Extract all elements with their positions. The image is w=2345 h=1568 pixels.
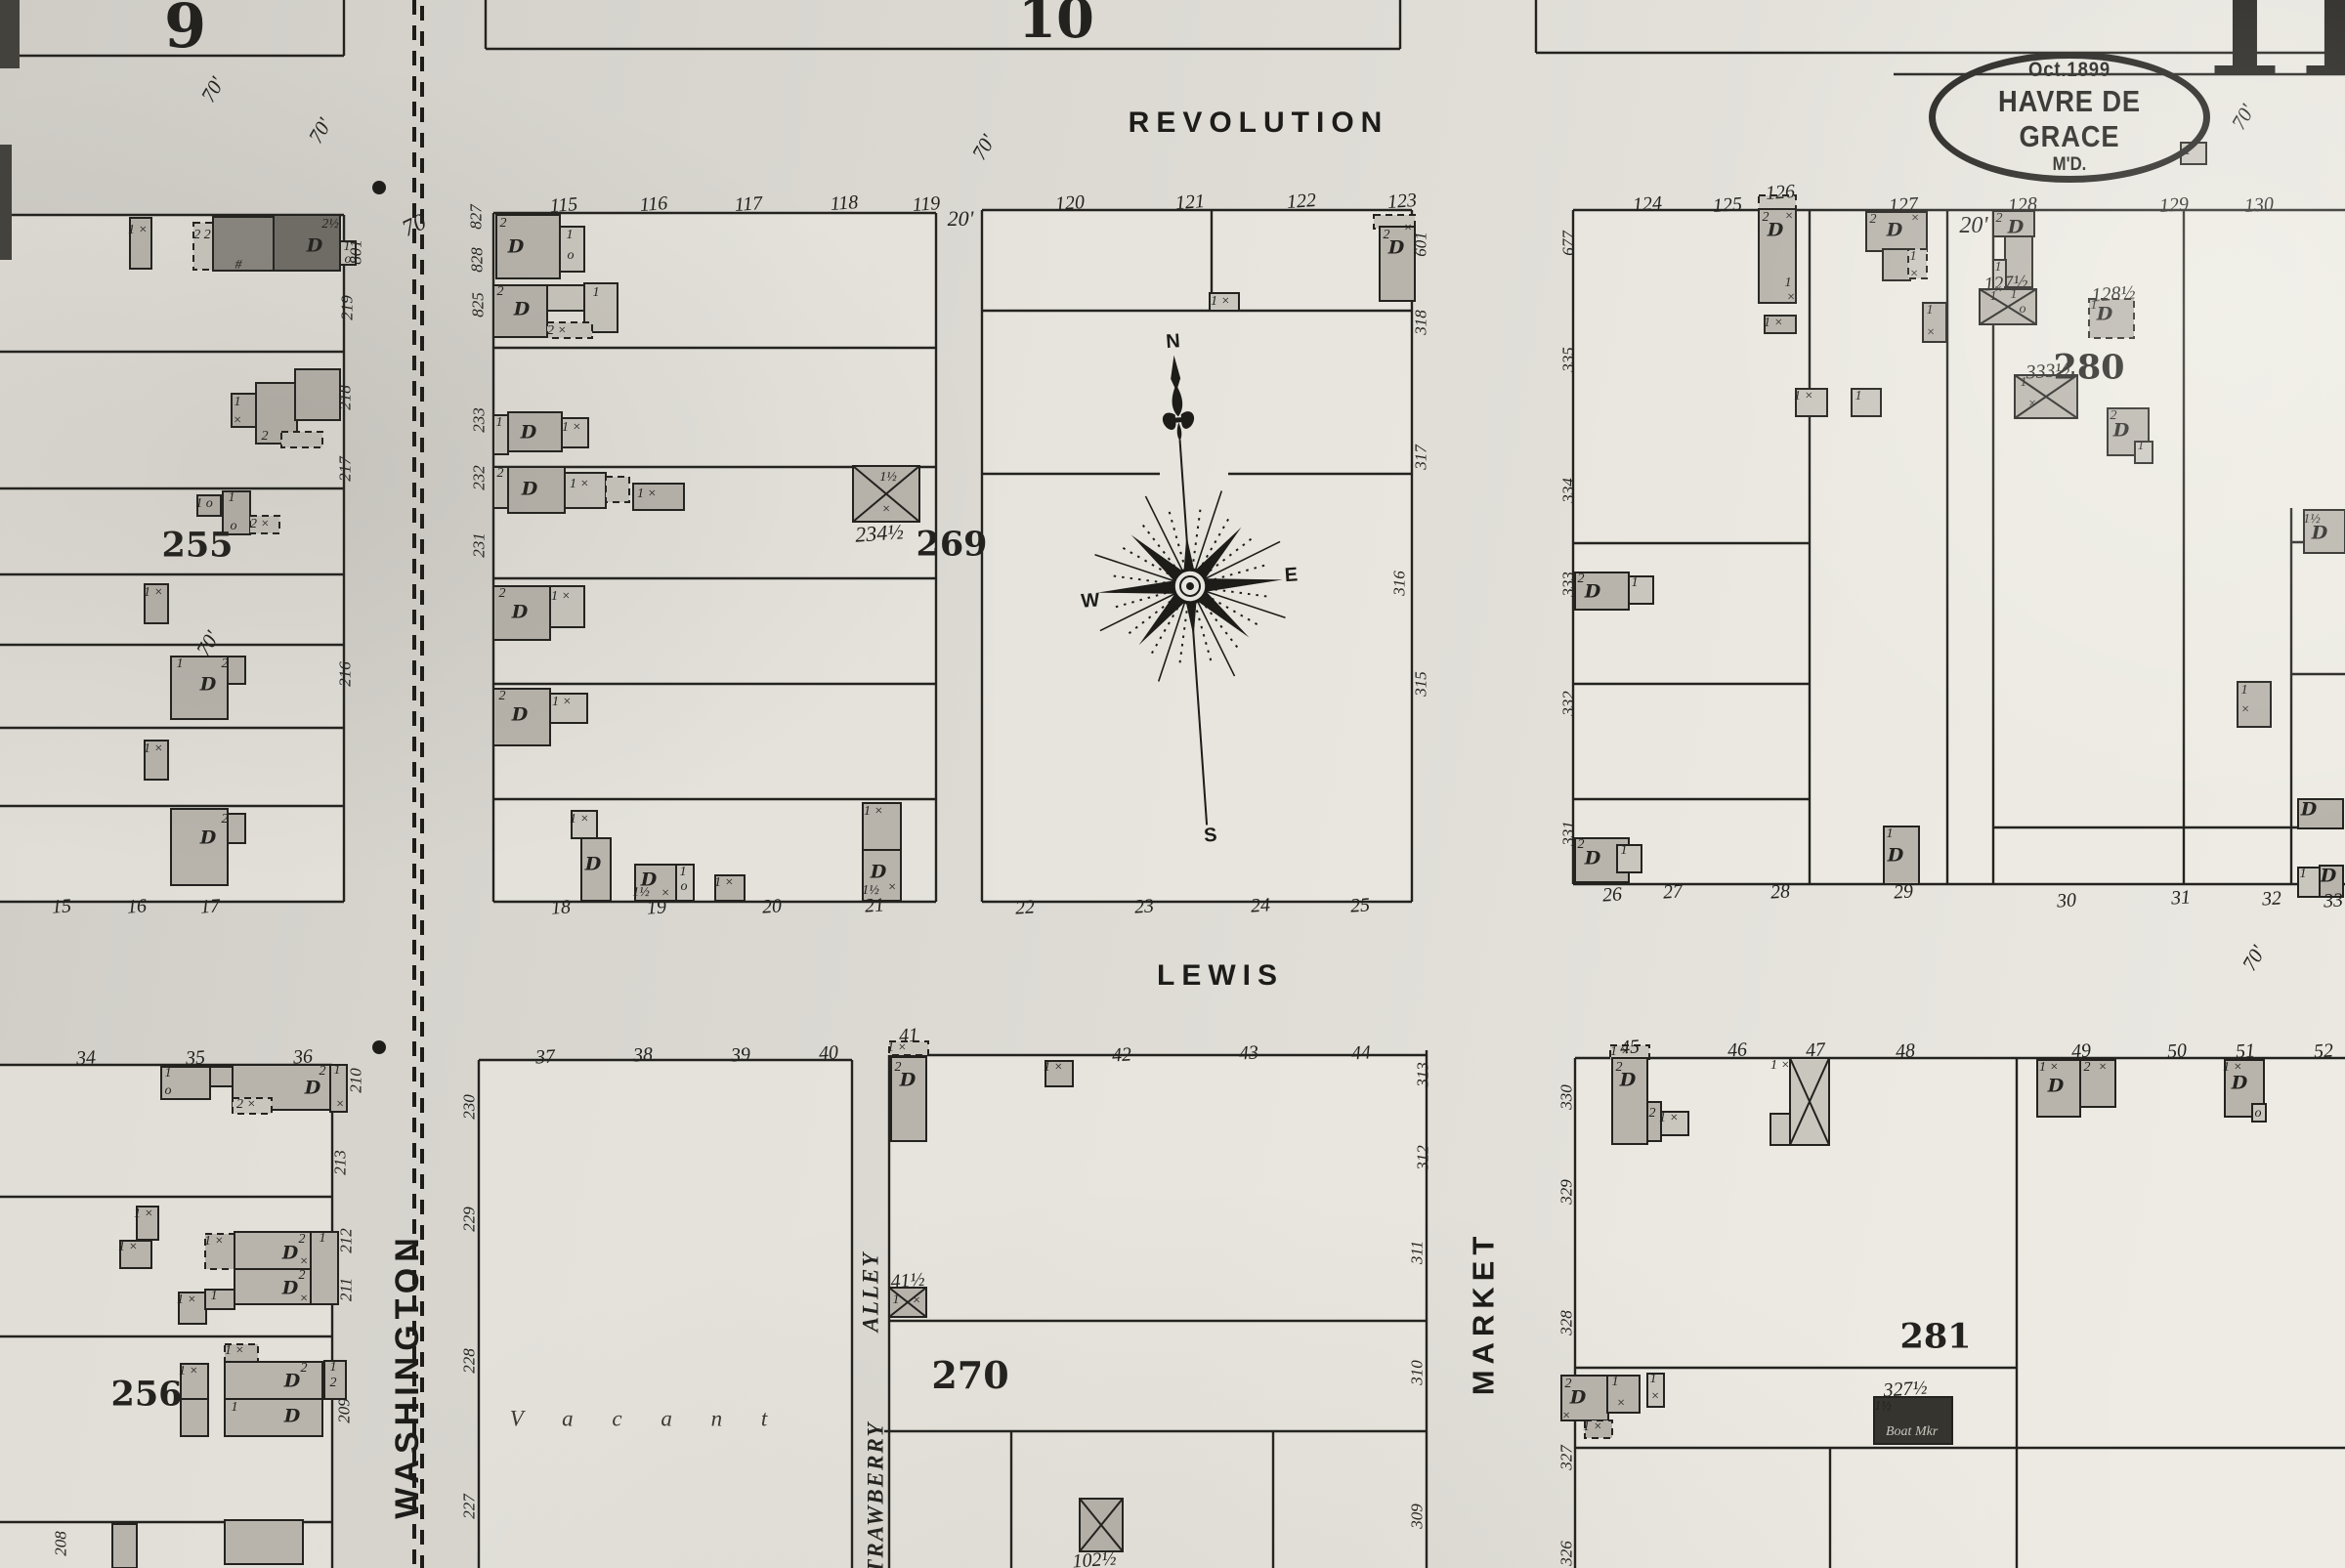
lot-number-label: 117	[734, 193, 763, 215]
building-mark: 2	[222, 657, 229, 671]
dwelling-mark: D	[1888, 847, 1903, 866]
house-number-label: 213	[332, 1150, 349, 1175]
lot-number-label: 234½	[855, 521, 905, 545]
building-mark: 2	[1996, 212, 2003, 226]
building-mark: ×	[2240, 703, 2249, 717]
building-mark: 1	[334, 1064, 341, 1078]
lot-number-label: 30	[2056, 890, 2076, 911]
building-mark: 1 ×	[714, 876, 734, 890]
lot-number-label: 33	[2323, 890, 2343, 911]
dwelling-mark: D	[508, 238, 524, 257]
street-label-washington: WASHINGTON	[391, 1232, 424, 1519]
house-number-label: 216	[337, 661, 354, 687]
lot-number-label: 121	[1174, 191, 1205, 213]
building-mark: 1	[893, 1293, 900, 1307]
block-number-255: 255	[161, 529, 233, 563]
building-mark: 1	[1990, 290, 1997, 304]
lot-number-label: 124	[1632, 193, 1662, 215]
dwelling-mark: D	[200, 676, 216, 695]
building-mark: 2	[497, 467, 504, 481]
house-number-label: 316	[1391, 571, 1408, 596]
lot-number-label: 38	[632, 1044, 653, 1065]
building-mark: o	[568, 249, 575, 263]
building-mark: 1	[232, 1401, 238, 1415]
lot-number-label: 118	[830, 192, 859, 214]
street-label-strawberry: STRAWBERRY	[865, 1421, 887, 1568]
lot-number-label: 24	[1250, 895, 1270, 915]
building-mark: 1	[1855, 390, 1862, 403]
compass-e-label: E	[1284, 564, 1299, 586]
building-mark: 1	[1927, 304, 1934, 318]
lot-number-label: 125	[1712, 194, 1742, 216]
block-number-256: 256	[110, 1377, 182, 1412]
building-mark: o	[2255, 1107, 2262, 1121]
building-mark: 2	[500, 217, 507, 231]
house-number-label: 677	[1560, 231, 1577, 256]
building-mark: 1	[2011, 288, 2018, 302]
dwelling-mark: D	[522, 481, 537, 499]
building-mark: 1	[211, 1290, 218, 1303]
building-mark: 1 ×	[552, 696, 572, 709]
lot-number-label: 44	[1350, 1042, 1371, 1063]
house-number-label: 310	[1409, 1360, 1426, 1385]
lot-number-label: 123	[1386, 191, 1417, 212]
building-footprint	[1770, 1114, 1790, 1145]
lot-number-label: 129	[2158, 194, 2189, 216]
dwelling-mark: D	[2321, 868, 2336, 886]
building-mark: 1 ×	[204, 1235, 224, 1249]
house-number-label: 825	[470, 292, 487, 318]
lot-number-label: 47	[1805, 1039, 1825, 1060]
dwelling-mark: D	[1585, 850, 1600, 869]
building-mark: 1 ×	[2039, 1061, 2059, 1075]
building-mark: 2 ×	[250, 518, 270, 531]
building-footprint	[213, 217, 274, 271]
lot-number-label: 48	[1895, 1040, 1915, 1061]
building-mark: 1 ×	[134, 1208, 153, 1221]
building-mark: 1 ×	[1659, 1112, 1679, 1125]
building-mark: 1 ×	[144, 586, 163, 600]
house-number-label: 309	[1409, 1504, 1426, 1529]
house-number-label: 328	[1558, 1310, 1575, 1335]
building-mark: ×	[299, 1255, 308, 1269]
building-mark: 2 2	[193, 229, 211, 242]
lot-number-label: 115	[549, 194, 578, 216]
building-mark: ×	[887, 881, 896, 895]
dwelling-mark: D	[512, 706, 528, 725]
lot-number-label: 126	[1765, 182, 1795, 203]
lot-number-label: 36	[292, 1046, 313, 1067]
building-mark: 2 ×	[547, 324, 567, 338]
house-number-label: 828	[469, 247, 486, 273]
building-mark: 1 ×	[118, 1241, 138, 1254]
lot-number-label: 130	[2243, 194, 2274, 216]
house-number-label: 326	[1558, 1541, 1575, 1566]
lot-number-label: 39	[730, 1044, 750, 1065]
building-mark: 1	[1995, 261, 2002, 275]
street-label-lewis: LEWIS	[1157, 961, 1284, 991]
lot-number-label: 35	[185, 1047, 205, 1068]
house-number-label: 311	[1409, 1241, 1426, 1264]
block-number-270: 270	[931, 1357, 1008, 1394]
street-label-revolution: REVOLUTION	[1129, 108, 1389, 138]
building-mark: ×	[1561, 1410, 1570, 1423]
building-mark: ×	[2027, 398, 2036, 411]
building-mark: 2	[301, 1362, 308, 1376]
lot-number-label: 122	[1286, 191, 1316, 212]
building-mark: 1 ×	[144, 742, 163, 756]
dwelling-mark: D	[1620, 1072, 1636, 1090]
lot-number-label: 31	[2170, 887, 2191, 908]
building-mark: 1 ×	[1770, 1059, 1790, 1073]
lot-number-label: 15	[51, 896, 71, 916]
lot-number-label: 52	[2313, 1040, 2333, 1061]
building-mark: ×	[1616, 1397, 1625, 1411]
building-mark: 1½	[632, 886, 650, 900]
building-footprint	[228, 657, 245, 684]
building-footprint	[225, 1362, 322, 1399]
dwelling-mark: D	[200, 829, 216, 848]
building-mark: 1½	[1874, 1400, 1892, 1414]
building-mark: 1	[496, 416, 503, 430]
house-number-label: 601	[1413, 232, 1429, 257]
lot-number-label: 46	[1727, 1039, 1747, 1060]
house-number-label: 312	[1415, 1145, 1431, 1170]
building-mark: ×	[1926, 326, 1935, 340]
building-mark: 1 ×	[570, 478, 589, 491]
building-mark: ×	[912, 1294, 920, 1308]
compass-w-label: W	[1081, 590, 1100, 613]
building-mark: 1	[177, 657, 184, 671]
lot-number-label: 16	[126, 896, 147, 916]
building-mark: 1 ×	[570, 813, 589, 826]
building-mark: 1	[1887, 827, 1894, 841]
boat-shop-label: Boat Mkr	[1886, 1424, 1938, 1440]
dwelling-mark: D	[307, 237, 322, 256]
house-number-label: 329	[1558, 1179, 1575, 1205]
badge-date: Oct.1899	[1951, 59, 2187, 82]
dwelling-mark: D	[2048, 1078, 2064, 1096]
house-number-label: 232	[471, 465, 488, 490]
building-mark: o	[681, 880, 688, 894]
building-mark: 1 ×	[225, 1344, 244, 1358]
building-mark: 1 ×	[562, 421, 581, 435]
building-mark: 2	[1578, 838, 1585, 852]
house-number-label: 333	[1560, 572, 1577, 597]
building-mark: ×	[1910, 212, 1919, 226]
lot-number-label: 29	[1893, 881, 1913, 902]
building-mark: 2	[262, 430, 269, 444]
building-mark: 2	[497, 285, 504, 299]
building-footprint	[1883, 249, 1910, 280]
dwelling-mark: D	[521, 424, 536, 443]
house-number-label: 212	[338, 1228, 355, 1253]
lot-number-label: 37	[534, 1046, 555, 1067]
building-mark: 1	[165, 1067, 172, 1081]
dwelling-mark: D	[2232, 1075, 2247, 1093]
dwelling-mark: D	[585, 856, 601, 874]
building-mark: 1 ×	[1794, 390, 1813, 403]
building-mark: ×	[1909, 268, 1918, 281]
lot-number-label: 41½	[890, 1270, 925, 1292]
building-mark: 1	[567, 229, 574, 242]
dwelling-mark: D	[1570, 1389, 1586, 1408]
building-mark: 1 ×	[637, 487, 657, 501]
sanborn-map-sheet: N E S W 9 10 11 Oct.1899 HAVRE DE GRACE …	[0, 0, 2345, 1568]
dwelling-mark: D	[871, 864, 886, 882]
dwelling-mark: D	[514, 301, 530, 319]
building-mark: 2	[1578, 572, 1585, 586]
building-mark: 1 ×	[551, 590, 571, 604]
building-mark: o	[2020, 303, 2026, 317]
house-number-label: 233	[471, 407, 488, 433]
block-number-269: 269	[916, 528, 987, 562]
building-mark: 1 ×	[1211, 295, 1230, 309]
house-number-label: 231	[471, 532, 488, 558]
building-mark: 1	[1632, 576, 1639, 590]
house-number-label: 209	[336, 1398, 353, 1423]
dwelling-mark: D	[1388, 239, 1404, 258]
lot-number-label: 49	[2070, 1040, 2091, 1061]
lot-number-label: 120	[1054, 192, 1085, 214]
building-footprint	[228, 814, 245, 843]
lot-number-label: 119	[912, 193, 941, 215]
dwelling-mark: D	[2312, 525, 2327, 543]
building-mark: 2	[299, 1269, 306, 1283]
building-mark: ×	[661, 887, 669, 901]
map-linework: N E S W	[0, 0, 2345, 1568]
building-mark: ×	[2098, 1061, 2107, 1075]
house-number-label: 315	[1413, 671, 1429, 697]
lot-number-label: 50	[2166, 1040, 2187, 1061]
building-mark: 2	[1870, 213, 1877, 227]
dwelling-mark: D	[2097, 306, 2112, 324]
building-mark: 1	[2091, 299, 2098, 313]
lot-number-label: 20	[761, 896, 782, 916]
building-mark: 1	[1621, 844, 1628, 858]
lot-number-label: 116	[639, 193, 668, 215]
building-mark: 1	[229, 491, 235, 505]
house-number-label: 208	[53, 1531, 69, 1556]
dwelling-mark: D	[1585, 583, 1600, 602]
house-number-label: 313	[1415, 1062, 1431, 1087]
house-number-label: 217	[337, 456, 354, 482]
building-mark: 1	[2138, 440, 2145, 453]
building-footprint	[225, 1399, 322, 1436]
building-mark: ×	[1403, 222, 1412, 235]
house-number-label: 327	[1558, 1445, 1575, 1470]
building-mark: 2 ×	[236, 1098, 256, 1112]
reference-dot	[372, 1040, 386, 1054]
lot-number-label: 22	[1014, 897, 1035, 917]
lot-number-label: 43	[1238, 1042, 1258, 1063]
building-mark: o	[345, 253, 352, 267]
dimension-label: 20'	[948, 208, 974, 230]
house-number-label: 318	[1413, 310, 1429, 335]
lot-number-label: 327½	[1883, 1377, 1928, 1400]
dwelling-mark: D	[1887, 222, 1902, 240]
building-mark: ×	[1784, 210, 1793, 224]
block-number-281: 281	[1899, 1320, 1971, 1354]
house-number-label: 230	[461, 1094, 478, 1120]
lot-number-label: 26	[1601, 884, 1622, 905]
house-number-label: 227	[461, 1494, 478, 1519]
house-number-label: 211	[338, 1278, 355, 1301]
building-mark: 1	[2021, 376, 2027, 390]
building-mark: 2	[330, 1377, 337, 1390]
building-mark: 1 o	[195, 497, 213, 511]
house-number-label: 334	[1560, 478, 1577, 503]
building-mark: 2	[2084, 1061, 2091, 1075]
reference-dot	[372, 181, 386, 194]
dwelling-mark: D	[900, 1072, 916, 1090]
lot-number-label: 34	[75, 1047, 96, 1068]
building-mark: 1	[1785, 276, 1792, 290]
building-mark: ×	[299, 1293, 308, 1306]
dwelling-mark: D	[284, 1373, 300, 1391]
building-mark: 2½	[321, 218, 339, 232]
building-mark: 1 ×	[177, 1293, 196, 1307]
building-mark: 2	[222, 813, 229, 826]
building-mark: 2	[299, 1233, 306, 1247]
house-number-label: 210	[348, 1068, 364, 1093]
building-mark: 1 ×	[128, 224, 148, 237]
building-mark: 1	[593, 286, 600, 300]
building-footprint	[606, 477, 629, 502]
building-mark: 1	[1650, 1373, 1657, 1386]
vacant-lot-label: V a c a n t	[510, 1408, 784, 1430]
building-mark: ×	[233, 414, 241, 428]
house-number-label: 229	[461, 1207, 478, 1232]
dwelling-mark: D	[2113, 422, 2129, 441]
building-footprint	[547, 285, 584, 311]
compass-s-label: S	[1203, 825, 1217, 847]
building-mark: 1½	[862, 884, 879, 898]
street-label-alley: ALLEY	[860, 1251, 882, 1333]
building-mark: 1	[330, 1361, 337, 1375]
building-footprint	[281, 432, 322, 447]
dwelling-mark: D	[282, 1280, 298, 1298]
lot-number-label: 42	[1111, 1044, 1131, 1065]
building-footprint	[181, 1399, 208, 1436]
house-number-label: 317	[1413, 445, 1429, 470]
building-mark: o	[165, 1084, 172, 1098]
lot-number-label: 32	[2261, 888, 2281, 909]
lot-number-label: 25	[1349, 895, 1370, 915]
lot-number-label: 28	[1769, 881, 1790, 902]
building-mark: 1 ×	[1583, 1420, 1602, 1434]
building-footprint	[205, 1290, 234, 1309]
adjacent-sheet-number-left: 9	[164, 0, 206, 62]
dwelling-mark: D	[2008, 219, 2024, 237]
building-mark: 2	[499, 690, 506, 703]
film-artifact	[0, 0, 20, 68]
building-mark: ×	[335, 1098, 344, 1112]
dwelling-mark: D	[284, 1408, 300, 1426]
building-mark: 2	[499, 587, 506, 601]
lot-number-label: 18	[550, 897, 571, 917]
building-mark: 1 ×	[1764, 317, 1783, 330]
building-mark: 1	[680, 866, 687, 879]
building-mark: 1	[234, 396, 241, 409]
building-mark: 2	[1649, 1107, 1656, 1121]
house-number-label: 228	[461, 1348, 478, 1374]
building-mark: 1 ×	[864, 805, 883, 819]
lot-number-label: 40	[818, 1042, 838, 1063]
dwelling-mark: D	[282, 1245, 298, 1263]
building-mark: 1½	[879, 471, 897, 485]
house-number-label: 332	[1560, 691, 1577, 716]
adjacent-sheet-number-center: 10	[1018, 0, 1094, 51]
lot-number-label: 23	[1133, 896, 1154, 916]
building-mark: 1	[1910, 250, 1917, 264]
building-mark: 1	[2185, 145, 2192, 158]
building-mark: ×	[1650, 1390, 1659, 1404]
building-mark: o	[231, 520, 237, 533]
compass-n-label: N	[1166, 330, 1181, 353]
badge-city: HAVRE DE GRACE	[1951, 84, 2187, 154]
lot-number-label: 333½	[2025, 360, 2070, 382]
lot-number-label: 17	[199, 896, 220, 916]
building-footprint	[112, 1524, 137, 1568]
film-artifact	[0, 145, 12, 260]
building-mark: 1 ×	[1610, 1045, 1630, 1059]
lot-number-label: 128	[2007, 194, 2037, 216]
building-mark: ×	[881, 503, 890, 517]
dwelling-mark: D	[1768, 222, 1783, 240]
house-number-label: 218	[337, 385, 354, 410]
building-mark: 1 ×	[1044, 1061, 1063, 1075]
dwelling-mark: D	[305, 1080, 320, 1098]
building-mark: 1 ×	[887, 1041, 907, 1055]
lot-number-label: 27	[1662, 881, 1683, 902]
building-mark: 1	[320, 1232, 326, 1246]
building-mark: ×	[1786, 291, 1795, 305]
house-number-label: 827	[468, 204, 485, 230]
dwelling-mark: D	[512, 604, 528, 622]
badge-state: M'D.	[1951, 154, 2187, 176]
dimension-label: 20'	[1959, 214, 1987, 237]
building-mark: #	[235, 259, 242, 273]
house-number-label: 219	[339, 295, 356, 320]
lot-number-label: 128½	[2091, 282, 2136, 305]
house-number-label: 335	[1560, 347, 1577, 372]
street-label-market: MARKET	[1469, 1231, 1499, 1396]
house-number-label: 330	[1558, 1084, 1575, 1110]
building-footprint	[225, 1520, 303, 1564]
building-mark: 1	[2300, 868, 2307, 881]
dwelling-mark: D	[2301, 801, 2317, 820]
house-number-label: 331	[1560, 821, 1577, 846]
building-mark: 1 ×	[179, 1365, 198, 1378]
building-footprint	[295, 369, 340, 420]
building-mark: 1	[2241, 684, 2248, 698]
sheet-number: 11	[2196, 0, 2345, 105]
survey-date-badge: Oct.1899 HAVRE DE GRACE M'D.	[1929, 52, 2210, 183]
lot-number-label: 102½	[1072, 1548, 1117, 1568]
building-footprint	[210, 1067, 233, 1086]
lot-number-label: 51	[2235, 1040, 2255, 1061]
lot-number-label: 21	[864, 895, 884, 915]
building-mark: 1	[1612, 1376, 1619, 1389]
